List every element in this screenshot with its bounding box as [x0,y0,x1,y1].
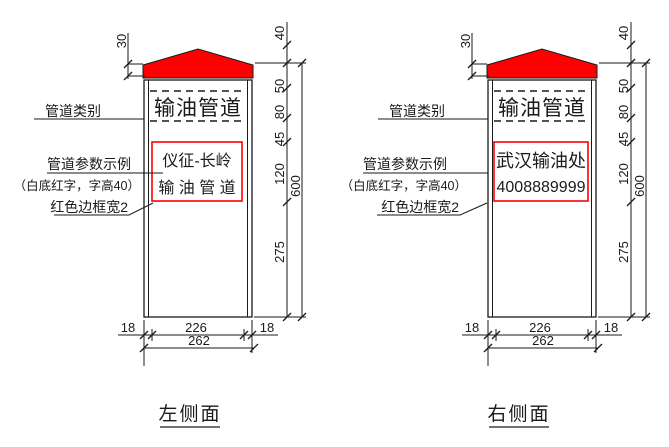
dim-chain-value-40: 40 [616,26,631,40]
dim-bottom-18-right: 18 [260,320,274,335]
dim-chain-value-45: 45 [616,132,631,146]
callout-params-label: 管道参数示例 [47,156,131,172]
dim-bottom-18-left: 18 [465,320,479,335]
params-panel-line2: 输 油 管 道 [158,179,235,197]
callout-border-label: 红色边框宽2 [381,199,459,215]
dim-bottom-18-left: 18 [121,320,135,335]
view-caption: 左侧面 [158,403,221,425]
callout-border-label: 红色边框宽2 [50,199,128,215]
view-caption: 右侧面 [487,403,550,425]
dim-overall-value: 600 [288,175,303,197]
callout-category-label: 管道类别 [389,103,445,119]
dim-chain-value-40: 40 [272,26,287,40]
dim-bottom-18-right: 18 [604,320,618,335]
dim-chain-value-120: 120 [616,163,631,185]
pipeline-marker-drawing: 输油管道 仪征-长岭 输 油 管 道 管道类别 管道参数示例 （白底红字，字高4… [0,0,669,447]
params-panel-line2: 4008889999 [497,179,586,196]
drawing-canvas: 输油管道 仪征-长岭 输 油 管 道 管道类别 管道参数示例 （白底红字，字高4… [0,0,669,447]
callout-params-label: 管道参数示例 [363,156,447,172]
callout-params-note: （白底红字，字高40） [14,178,140,193]
dim-chain-value-50: 50 [616,79,631,93]
pipeline-category-text: 输油管道 [498,97,586,120]
dim-chain-value-120: 120 [272,163,287,185]
dim-chain-value-275: 275 [272,241,287,263]
dim-cap-height-value: 30 [114,34,129,48]
dim-overall-value: 600 [632,175,647,197]
dim-cap-line [472,33,489,79]
dim-bottom-total-262: 262 [532,333,554,348]
view-left-group: 输油管道 仪征-长岭 输 油 管 道 管道类别 管道参数示例 （白底红字，字高4… [14,22,306,427]
marker-cap-roof [143,49,253,78]
params-panel-line1: 仪征-长岭 [162,152,231,170]
pipeline-category-text: 输油管道 [154,97,242,120]
callout-category-label: 管道类别 [45,103,101,119]
dim-chain-value-80: 80 [616,105,631,119]
dim-chain-value-50: 50 [272,79,287,93]
dim-bottom-total-262: 262 [188,333,210,348]
dim-chain-value-45: 45 [272,132,287,146]
dim-chain-value-275: 275 [616,241,631,263]
view-right-group: 输油管道 武汉输油处 4008889999 管道类别 管道参数示例 （白底红字，… [341,22,650,427]
dim-cap-height-value: 30 [458,34,473,48]
dim-chain-value-80: 80 [272,105,287,119]
dim-cap-line [128,33,145,79]
callout-params-note: （白底红字，字高40） [341,178,467,193]
params-panel-line1: 武汉输油处 [496,151,586,171]
marker-cap-roof [487,49,597,78]
